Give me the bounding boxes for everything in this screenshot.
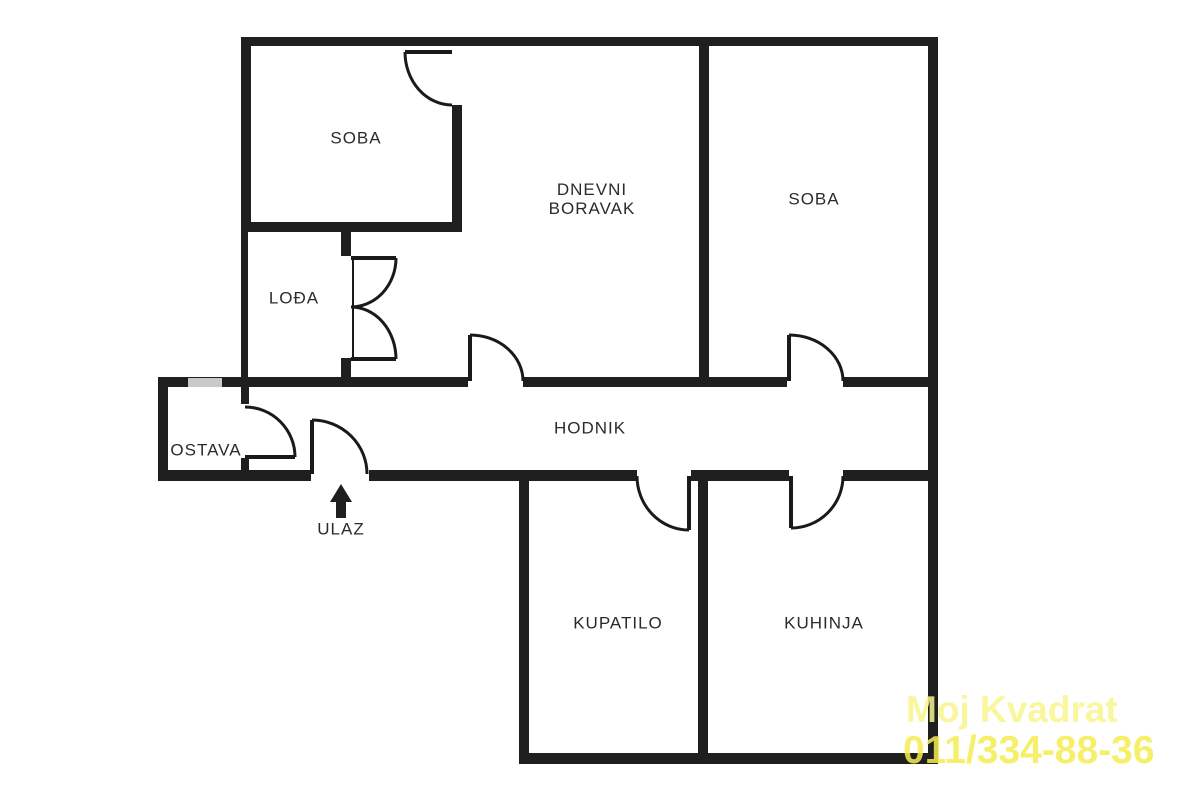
door-arc-lodja-top [351, 258, 396, 307]
room-label-ostava: OSTAVA [170, 441, 241, 460]
door-arc-dnevni [470, 335, 523, 381]
wall-kupatilo-left [519, 470, 529, 764]
door-arc-lodja-bottom [351, 307, 396, 359]
wall-soba1-bottom [241, 222, 462, 232]
room-label-kuhinja: KUHINJA [784, 614, 864, 633]
wall-hodnik-top-3 [843, 377, 938, 387]
door-arc-kuhinja [791, 476, 843, 528]
wall-right [928, 37, 938, 764]
room-label-soba-top-left: SOBA [330, 129, 381, 148]
wall-ostava-right-top [241, 387, 249, 404]
door-arc-ulaz [312, 420, 367, 474]
watermark-phone: 011/334-88-36 [903, 729, 1155, 773]
floor-plan-canvas: SOBA DNEVNI BORAVAK SOBA LOĐA OSTAVA HOD… [0, 0, 1200, 799]
wall-hodnik-bottom-1 [158, 470, 311, 481]
door-arc-ostava [245, 407, 295, 457]
door-arc-soba2 [789, 335, 843, 381]
wall-bottom [519, 753, 938, 764]
door-arc-kupatilo [637, 476, 689, 530]
room-label-hodnik: HODNIK [554, 419, 626, 438]
room-label-lodja: LOĐA [269, 289, 319, 308]
door-arc-soba1 [405, 52, 452, 105]
wall-soba1-left [241, 37, 251, 232]
doors-group [245, 52, 843, 530]
wall-hodnik-bottom-3 [691, 470, 789, 481]
wall-soba1-right [452, 105, 462, 232]
wall-ostava-right-bottom [241, 458, 249, 470]
wall-lodja-left [241, 232, 248, 387]
wall-top [241, 37, 938, 46]
wall-hodnik-bottom-4 [843, 470, 938, 481]
wall-divider-kupatilo-kuhinja [698, 481, 708, 753]
entrance-label-ulaz: ULAZ [317, 520, 364, 539]
room-label-soba-right: SOBA [788, 190, 839, 209]
entrance-arrow-icon [330, 484, 352, 518]
wall-hodnik-top-2 [523, 377, 787, 387]
floor-plan-drawing [0, 0, 1200, 799]
wall-hodnik-bottom-2 [369, 470, 637, 481]
wall-lodja-right-top [341, 222, 351, 256]
wall-ostava-left [158, 377, 168, 481]
window-marker [188, 378, 222, 387]
watermark-brand: Moj Kvadrat [906, 689, 1118, 731]
wall-divider-dnevni-soba [699, 37, 709, 387]
room-label-dnevni-boravak: DNEVNI BORAVAK [536, 180, 648, 218]
room-label-kupatilo: KUPATILO [573, 614, 663, 633]
walls-group [158, 37, 938, 764]
